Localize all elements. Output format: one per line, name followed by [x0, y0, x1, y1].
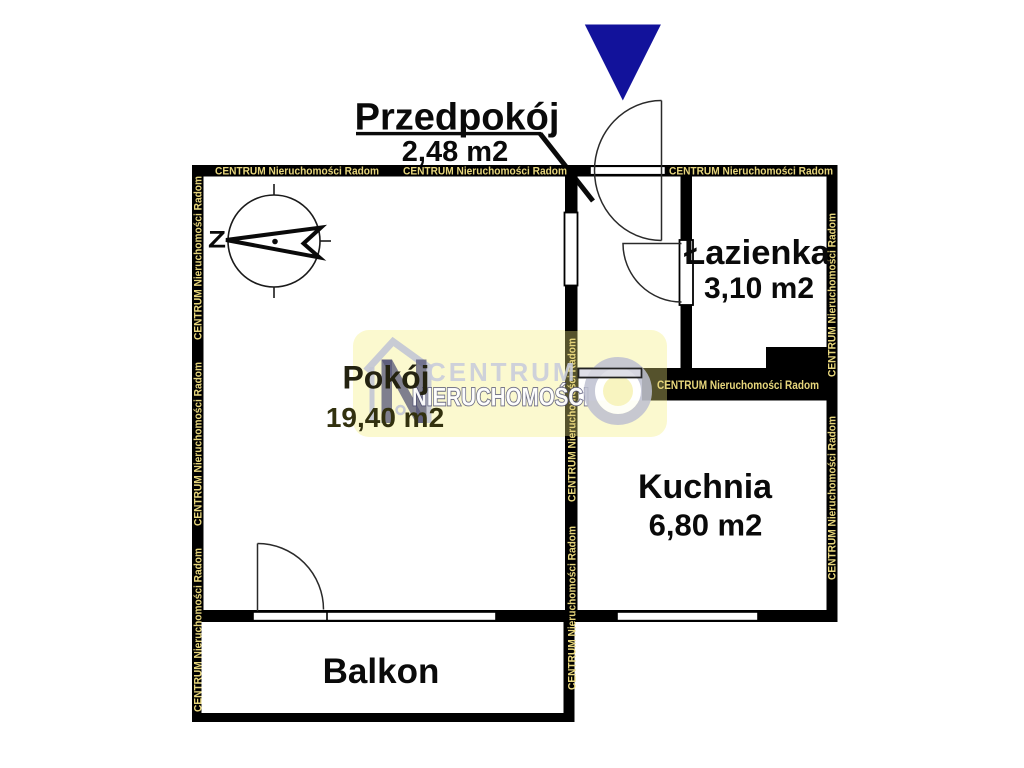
- svg-text:Łazienka: Łazienka: [684, 234, 831, 272]
- svg-text:6,80 m2: 6,80 m2: [649, 508, 763, 543]
- svg-text:CENTRUM Nieruchomości Radom: CENTRUM Nieruchomości Radom: [193, 362, 205, 526]
- svg-text:CENTRUM Nieruchomości Radom: CENTRUM Nieruchomości Radom: [657, 380, 819, 392]
- svg-text:Pokój: Pokój: [342, 360, 429, 396]
- svg-text:Kuchnia: Kuchnia: [638, 468, 773, 506]
- svg-text:CENTRUM: CENTRUM: [427, 357, 584, 387]
- svg-text:Z: Z: [208, 227, 226, 254]
- svg-text:19,40 m2: 19,40 m2: [326, 402, 444, 433]
- svg-text:CENTRUM Nieruchomości Radom: CENTRUM Nieruchomości Radom: [403, 166, 567, 178]
- svg-text:CENTRUM Nieruchomości Radom: CENTRUM Nieruchomości Radom: [193, 176, 205, 340]
- svg-text:2,48 m2: 2,48 m2: [402, 136, 508, 168]
- svg-text:CENTRUM Nieruchomości Radom: CENTRUM Nieruchomości Radom: [567, 526, 579, 690]
- svg-text:CENTRUM Nieruchomości Radom: CENTRUM Nieruchomości Radom: [669, 166, 833, 178]
- svg-text:CENTRUM Nieruchomości Radom: CENTRUM Nieruchomości Radom: [215, 166, 379, 178]
- svg-text:3,10 m2: 3,10 m2: [704, 272, 814, 305]
- svg-text:CENTRUM Nieruchomości Radom: CENTRUM Nieruchomości Radom: [827, 416, 839, 580]
- svg-text:CENTRUM Nieruchomości Radom: CENTRUM Nieruchomości Radom: [193, 548, 205, 712]
- svg-text:Balkon: Balkon: [323, 652, 440, 691]
